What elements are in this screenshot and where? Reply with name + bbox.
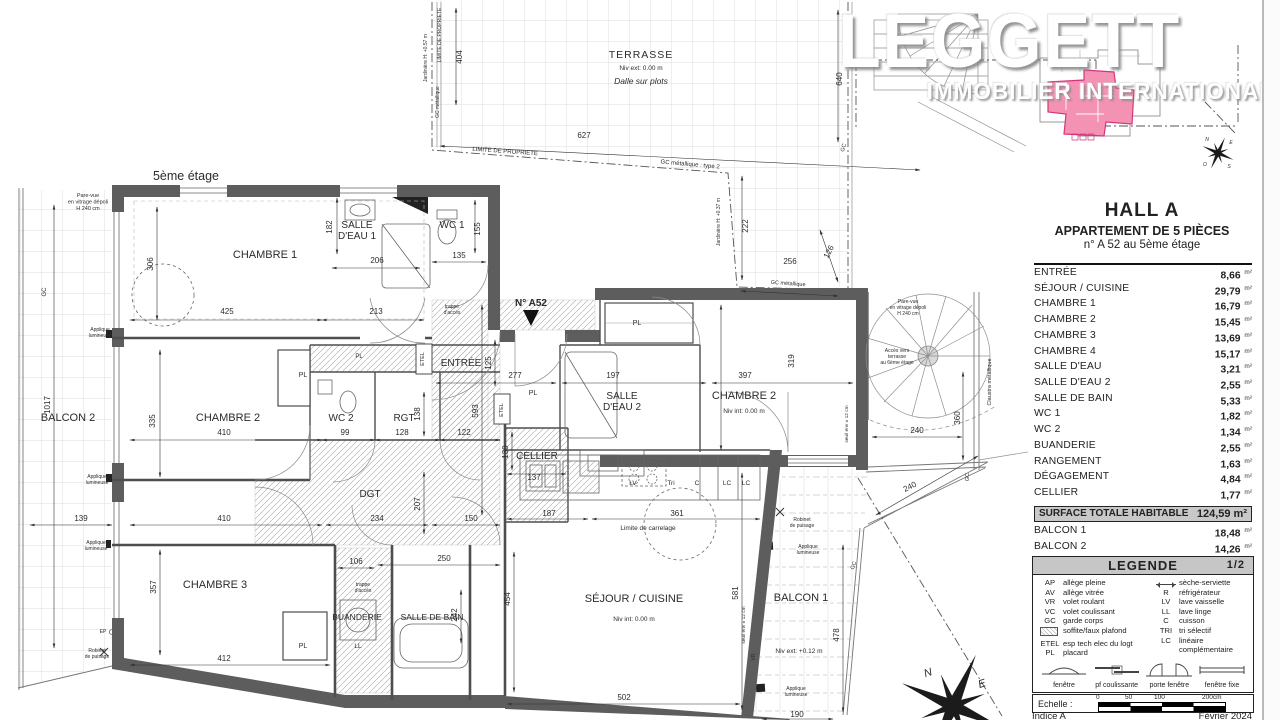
plan-label: 99 bbox=[341, 428, 350, 437]
legend-right-col: sèche-servietteRréfrigérateurLVlave vais… bbox=[1153, 578, 1249, 658]
window-symbol-icon bbox=[1039, 660, 1089, 678]
plan-label: 404 bbox=[455, 50, 464, 64]
compass-n: N bbox=[922, 666, 933, 680]
symbol-fenetre: fenêtre bbox=[1039, 660, 1089, 689]
plan-label: 139 bbox=[74, 514, 88, 523]
plan-label: GC bbox=[965, 473, 971, 481]
plan-label: Appliquelumineuse bbox=[785, 686, 808, 698]
plan-label: 306 bbox=[146, 257, 155, 271]
plan-label: 319 bbox=[787, 354, 796, 368]
plan-label: PL bbox=[633, 320, 642, 327]
plan-label: 213 bbox=[369, 307, 383, 316]
legend-item: APallège pleine bbox=[1037, 578, 1153, 588]
plan-label: 397 bbox=[738, 371, 752, 380]
plan-label: 593 bbox=[471, 404, 480, 418]
floor-title: 5ème étage bbox=[153, 169, 219, 183]
plan-label: PL bbox=[355, 354, 363, 360]
room-wc1: WC 1 bbox=[440, 220, 465, 231]
indice-label: Indice A bbox=[1032, 711, 1066, 722]
upper-floor-context bbox=[856, 14, 1238, 152]
plan-label: 425 bbox=[220, 307, 234, 316]
legend-box: LEGENDE 1/2 APallège pleineAVallège vitr… bbox=[1032, 556, 1254, 693]
compass2-o: O bbox=[1203, 162, 1207, 168]
plan-label: LC bbox=[723, 480, 732, 487]
room-chambre1: CHAMBRE 1 bbox=[233, 249, 297, 261]
plan-label: ETEL bbox=[499, 403, 505, 417]
plan-label: EP bbox=[100, 629, 107, 635]
plan-label: 240 bbox=[910, 426, 924, 435]
area-row: CELLIER1,77 m² bbox=[1034, 487, 1252, 503]
plan-label: LV bbox=[629, 480, 637, 487]
plan-label: 187 bbox=[542, 509, 556, 518]
plan-label: GC bbox=[42, 287, 48, 297]
room-chambre2-right: CHAMBRE 2 bbox=[712, 390, 776, 402]
plan-label: 234 bbox=[370, 514, 384, 523]
plan-label: 361 bbox=[670, 509, 684, 518]
hall-title: HALL A bbox=[1032, 200, 1252, 222]
plan-label: ETEL bbox=[420, 352, 426, 366]
compass-e: E bbox=[977, 677, 988, 691]
legend-item: LLlave linge bbox=[1153, 607, 1249, 617]
area-row: DÉGAGEMENT4,84 m² bbox=[1034, 471, 1252, 487]
plan-label: 410 bbox=[217, 514, 231, 523]
plan-label: LC bbox=[742, 480, 751, 487]
hatch-symbol-icon bbox=[1040, 627, 1058, 636]
plan-label: C bbox=[695, 480, 700, 487]
area-row: CHAMBRE 215,45 m² bbox=[1034, 314, 1252, 330]
plan-label: Appliquelumineuse bbox=[86, 474, 109, 486]
legend-item: GCgarde corps bbox=[1037, 616, 1153, 626]
title-block: HALL A APPARTEMENT DE 5 PIÈCES n° A 52 a… bbox=[1032, 200, 1252, 251]
symbol-pf-coulissante: pf coulissante bbox=[1092, 660, 1142, 689]
plan-label: Jardinière H: +0.57 m bbox=[423, 34, 429, 82]
area-row: SALLE DE BAIN5,33 m² bbox=[1034, 393, 1252, 409]
plan-label: 360 bbox=[953, 411, 962, 425]
plan-label: 627 bbox=[577, 131, 591, 140]
room-entree: ENTRÉE bbox=[441, 356, 482, 369]
plan-label: 250 bbox=[437, 554, 451, 563]
plan-label: Niv int: 0.00 m bbox=[613, 616, 655, 623]
room-chambre3: CHAMBRE 3 bbox=[183, 579, 247, 591]
plan-label: Appliquelumineuse bbox=[89, 327, 112, 339]
total-habitable-row: SURFACE TOTALE HABITABLE 124,59 m² bbox=[1034, 506, 1252, 522]
area-row: BALCON 214,26 m² bbox=[1034, 541, 1252, 557]
legend-item: PLplacard bbox=[1037, 648, 1153, 658]
legend-item: ETELesp tech elec du logt bbox=[1037, 639, 1153, 649]
plan-label: PL bbox=[299, 643, 308, 650]
legend-item: Rréfrigérateur bbox=[1153, 588, 1249, 598]
plan-label: LL bbox=[354, 643, 362, 650]
legend-header: LEGENDE 1/2 bbox=[1033, 557, 1253, 575]
legend-item: VCvolet coulissant bbox=[1037, 607, 1153, 617]
plan-label: Jardinière H: +0.37 m bbox=[716, 198, 722, 246]
plan-label: GC métallique bbox=[435, 86, 441, 118]
area-row: SALLE D'EAU 22,55 m² bbox=[1034, 377, 1252, 393]
legend-item: soffite/faux plafond bbox=[1037, 626, 1153, 639]
plan-label: Niv ext: 0.00 m bbox=[619, 65, 662, 72]
plan-label: 182 bbox=[325, 220, 334, 234]
plan-label: seuil env ± 12 cm bbox=[844, 405, 850, 442]
area-row: RANGEMENT1,63 m² bbox=[1034, 456, 1252, 472]
area-row: ENTRÉE8,66 m² bbox=[1034, 267, 1252, 283]
legend-item: Ccuisson bbox=[1153, 616, 1249, 626]
towel-radiator-icon bbox=[1156, 584, 1176, 585]
room-terrasse: TERRASSE bbox=[609, 49, 674, 61]
plan-label: 106 bbox=[349, 557, 363, 566]
legend-title: LEGENDE bbox=[1108, 558, 1178, 573]
legend-item: LVlave vaisselle bbox=[1153, 597, 1249, 607]
site-plan bbox=[1040, 50, 1160, 140]
plan-label: Limite de carrelage bbox=[620, 525, 676, 532]
plan-label: 478 bbox=[832, 628, 841, 642]
legend-symbols: fenêtre pf coulissante porte fenêtre fen… bbox=[1033, 658, 1253, 692]
plan-label: seuil env ± 12 cm bbox=[741, 606, 747, 643]
date-label: Février 2024 bbox=[1199, 711, 1252, 722]
plan-label: 640 bbox=[835, 72, 844, 86]
area-row: BALCON 118,48 m² bbox=[1034, 525, 1252, 541]
plan-label: 197 bbox=[606, 371, 620, 380]
legend-left-col: APallège pleineAVallège vitréeVRvolet ro… bbox=[1037, 578, 1153, 658]
plan-label: 256 bbox=[783, 257, 797, 266]
plan-label: PL bbox=[529, 390, 538, 397]
compass-rose-small bbox=[1196, 131, 1241, 176]
room-balcon1: BALCON 1 bbox=[774, 592, 828, 604]
room-salledeau2: SALLED'EAU 2 bbox=[603, 391, 641, 413]
compass2-n: N bbox=[1205, 137, 1209, 143]
plan-label: 410 bbox=[217, 428, 231, 437]
plan-label: Tri bbox=[667, 480, 674, 487]
total-habitable-value: 124,59 m² bbox=[1197, 508, 1247, 520]
apartment-number: n° A 52 au 5ème étage bbox=[1032, 239, 1252, 251]
plan-label: 207 bbox=[413, 497, 422, 511]
plan-label: Pare-vueen vitrage dépoliH 240 cm bbox=[890, 299, 927, 317]
apartment-type: APPARTEMENT DE 5 PIÈCES bbox=[1032, 224, 1252, 238]
plan-label: Niv ext: +0.12 m bbox=[775, 648, 822, 655]
room-buanderie: BUANDERIE bbox=[332, 612, 382, 622]
area-row: CHAMBRE 116,79 m² bbox=[1034, 298, 1252, 314]
plan-label: 122 bbox=[457, 428, 471, 437]
room-wc2: WC 2 bbox=[329, 413, 354, 424]
plan-label: 130 bbox=[501, 445, 510, 459]
area-row: WC 21,34 m² bbox=[1034, 424, 1252, 440]
plan-label: VR bbox=[751, 653, 757, 660]
fixed-window-symbol-icon bbox=[1197, 660, 1247, 678]
plan-label: 128 bbox=[395, 428, 409, 437]
symbol-porte-fenetre: porte fenêtre bbox=[1144, 660, 1194, 689]
spiral-stair bbox=[858, 292, 1040, 716]
plan-label: 138 bbox=[413, 407, 422, 421]
plan-label: 222 bbox=[741, 219, 750, 233]
plan-label: Appliquelumineuse bbox=[797, 544, 820, 556]
unit-marker: N° A52 bbox=[515, 298, 547, 309]
compass-rose bbox=[879, 632, 1027, 720]
compass2-s: S bbox=[1227, 164, 1231, 170]
sheet-footer: Indice A Février 2024 bbox=[1032, 711, 1252, 722]
plan-label: 137 bbox=[527, 473, 541, 482]
plan-label: 190 bbox=[790, 710, 804, 719]
area-row: SÉJOUR / CUISINE29,79 m² bbox=[1034, 283, 1252, 299]
symbol-fenetre-fixe: fenêtre fixe bbox=[1197, 660, 1247, 689]
legend-item: AVallège vitrée bbox=[1037, 588, 1153, 598]
scale-label: Echelle : bbox=[1038, 699, 1098, 709]
plan-label: 277 bbox=[508, 371, 522, 380]
area-row: BUANDERIE2,55 m² bbox=[1034, 440, 1252, 456]
legend-page: 1/2 bbox=[1227, 557, 1245, 574]
plan-label: 242 bbox=[450, 608, 459, 622]
plan-label: 454 bbox=[503, 592, 512, 606]
legend-item: TRItri sélectif bbox=[1153, 626, 1249, 636]
room-cellier: CELLIER bbox=[516, 451, 558, 462]
plan-label: 412 bbox=[217, 654, 231, 663]
area-row: SALLE D'EAU3,21 m² bbox=[1034, 361, 1252, 377]
scale-bar: 0 50 100 200cm bbox=[1098, 702, 1224, 710]
plan-label: 357 bbox=[149, 580, 158, 594]
room-salledeau1: SALLED'EAU 1 bbox=[338, 220, 376, 242]
balcony2 bbox=[18, 188, 115, 690]
total-habitable-label: SURFACE TOTALE HABITABLE bbox=[1039, 508, 1188, 519]
legend-item: sèche-serviette bbox=[1153, 578, 1249, 588]
plan-label: 502 bbox=[617, 693, 631, 702]
plan-label: 125 bbox=[484, 356, 493, 370]
area-row: CHAMBRE 313,69 m² bbox=[1034, 330, 1252, 346]
plan-label: LIMITE DE PROPRIETE bbox=[437, 7, 443, 62]
plan-label: Accès versterrasseau 6ème étage bbox=[880, 348, 914, 366]
balcony1 bbox=[752, 462, 988, 715]
legend-item: LClinéaire complémentaire bbox=[1153, 636, 1249, 655]
french-door-symbol-icon bbox=[1144, 660, 1194, 678]
plan-label: 206 bbox=[370, 256, 384, 265]
plan-label: 1017 bbox=[43, 396, 52, 414]
room-rgt: RGT bbox=[393, 413, 414, 424]
sliding-window-symbol-icon bbox=[1092, 660, 1142, 678]
plan-label: PL bbox=[299, 372, 308, 379]
plan-label: 581 bbox=[731, 586, 740, 600]
plan-label: Niv int: 0.00 m bbox=[723, 408, 765, 415]
plan-label: trapped'accès bbox=[355, 582, 372, 594]
plan-label: Claustra métallique bbox=[987, 358, 993, 405]
compass2-e: E bbox=[1229, 140, 1233, 146]
plan-label: 150 bbox=[464, 514, 478, 523]
room-chambre2: CHAMBRE 2 bbox=[196, 412, 260, 424]
room-dgt: DGT bbox=[359, 489, 380, 500]
plan-label: Appliquelumineuse bbox=[85, 540, 108, 552]
room-sejour: SÉJOUR / CUISINE bbox=[585, 592, 683, 605]
plan-label: 335 bbox=[148, 414, 157, 428]
legend-item: VRvolet roulant bbox=[1037, 597, 1153, 607]
plan-label: 135 bbox=[452, 251, 466, 260]
area-row: CHAMBRE 415,17 m² bbox=[1034, 346, 1252, 362]
plan-label: trapped'accès bbox=[444, 304, 461, 316]
sheet-margin bbox=[1264, 0, 1280, 720]
area-row: WC 11,82 m² bbox=[1034, 408, 1252, 424]
plan-label: Dalle sur plots bbox=[614, 76, 669, 86]
areas-rows: ENTRÉE8,66 m²SÉJOUR / CUISINE29,79 m²CHA… bbox=[1034, 267, 1252, 503]
plan-label: 155 bbox=[473, 222, 482, 236]
